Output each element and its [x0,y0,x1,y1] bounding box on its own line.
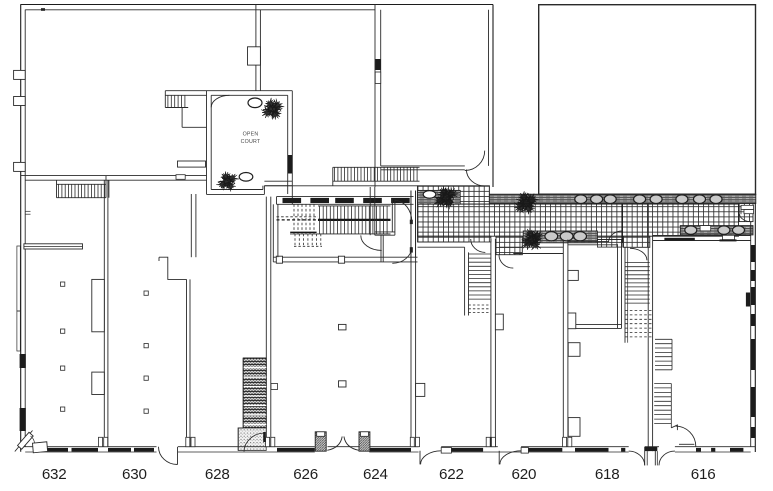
svg-text:628: 628 [205,466,230,483]
svg-text:620: 620 [512,466,537,483]
svg-text:632: 632 [42,466,67,483]
svg-text:630: 630 [122,466,147,483]
svg-text:616: 616 [691,466,716,483]
svg-text:624: 624 [363,466,388,483]
svg-text:OPEN: OPEN [243,132,259,138]
svg-text:618: 618 [595,466,620,483]
svg-text:626: 626 [293,466,318,483]
svg-text:622: 622 [439,466,464,483]
svg-text:COURT: COURT [241,139,261,145]
